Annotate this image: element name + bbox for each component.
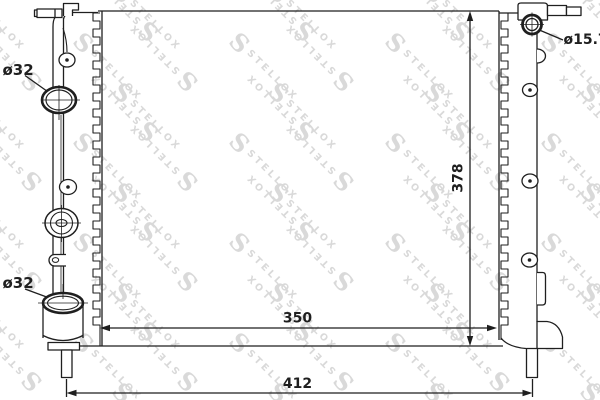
radiator-core: [80, 11, 508, 346]
left-mounting-pin: [62, 350, 73, 378]
callout-cap-leader: [541, 31, 564, 41]
top-mounting-bracket: [64, 4, 79, 17]
callout-bottom-port-value: ø32: [3, 274, 34, 292]
dim-core-width-arrow-right: [487, 325, 497, 331]
right-grommet-middle-center: [528, 179, 532, 183]
right-tank: [499, 3, 581, 378]
overflow-pipe-tip: [567, 7, 582, 16]
left-grommet-middle-center: [66, 185, 70, 189]
left-grommet-top-center: [65, 58, 69, 62]
dim-height-arrow-bottom: [467, 336, 473, 346]
right-core-plate-serration: [501, 13, 508, 340]
right-grommet-top-center: [528, 88, 532, 92]
right-edge-notch: [537, 49, 545, 63]
left-foot-flange: [48, 343, 80, 351]
right-grommet-bottom-center: [528, 258, 532, 262]
right-tank-bottom-curve: [501, 338, 526, 349]
radiator-technical-drawing: SSTELLOXSSTELLOXSSTELLOXSSTELLOXSSTELLOX…: [0, 0, 600, 400]
dim-overall-arrow-left: [67, 390, 77, 396]
top-inlet-pipe: [37, 9, 62, 18]
left-side-tab: [49, 255, 66, 267]
right-mounting-pin: [527, 349, 538, 378]
left-tank: [35, 4, 99, 378]
left-core-plate-serration: [93, 13, 100, 346]
radiator-drawing-svg: 378 350 412 ø32 ø32 ø15.7: [0, 0, 600, 400]
overflow-pipe: [548, 6, 567, 16]
dimensions: 378 350 412 ø32 ø32 ø15.7: [3, 11, 600, 397]
dim-overall-arrow-right: [523, 390, 533, 396]
callout-top-port-value: ø32: [3, 61, 34, 79]
right-bracket-foot: [537, 322, 563, 349]
callout-cap-value: ø15.7: [564, 32, 600, 48]
right-side-tab: [537, 273, 546, 306]
dim-overall-width-value: 412: [283, 376, 312, 392]
dim-height-value: 378: [451, 163, 467, 192]
outlet-body-bottom-arc: [43, 336, 83, 341]
dim-core-width-value: 350: [283, 311, 312, 327]
dim-height-arrow-top: [467, 11, 473, 21]
